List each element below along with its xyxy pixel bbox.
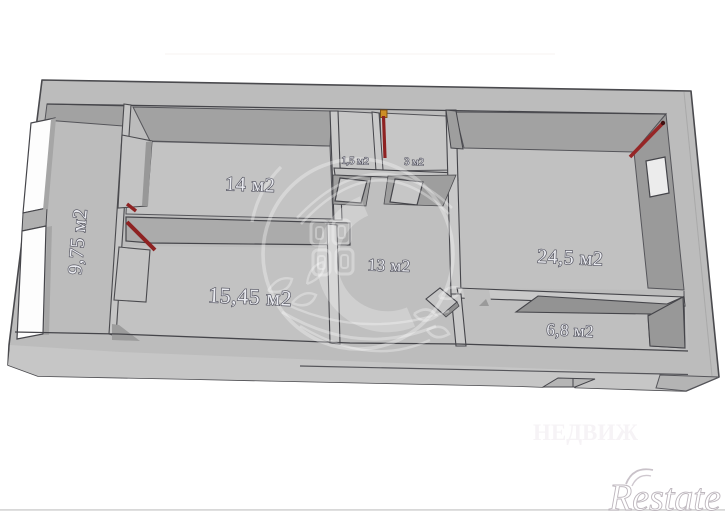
svg-text:15,45 м2: 15,45 м2 bbox=[208, 282, 293, 311]
svg-text:13 м2: 13 м2 bbox=[367, 255, 411, 275]
svg-text:3 м2: 3 м2 bbox=[404, 157, 424, 169]
svg-text:14 м2: 14 м2 bbox=[225, 173, 276, 197]
svg-text:Restate: Restate bbox=[608, 477, 721, 513]
svg-text:НЕДВИЖ: НЕДВИЖ bbox=[533, 420, 638, 445]
svg-text:1,5 м2: 1,5 м2 bbox=[341, 155, 369, 167]
svg-text:6,8 м2: 6,8 м2 bbox=[546, 320, 595, 341]
svg-text:24,5 м2: 24,5 м2 bbox=[537, 246, 604, 271]
